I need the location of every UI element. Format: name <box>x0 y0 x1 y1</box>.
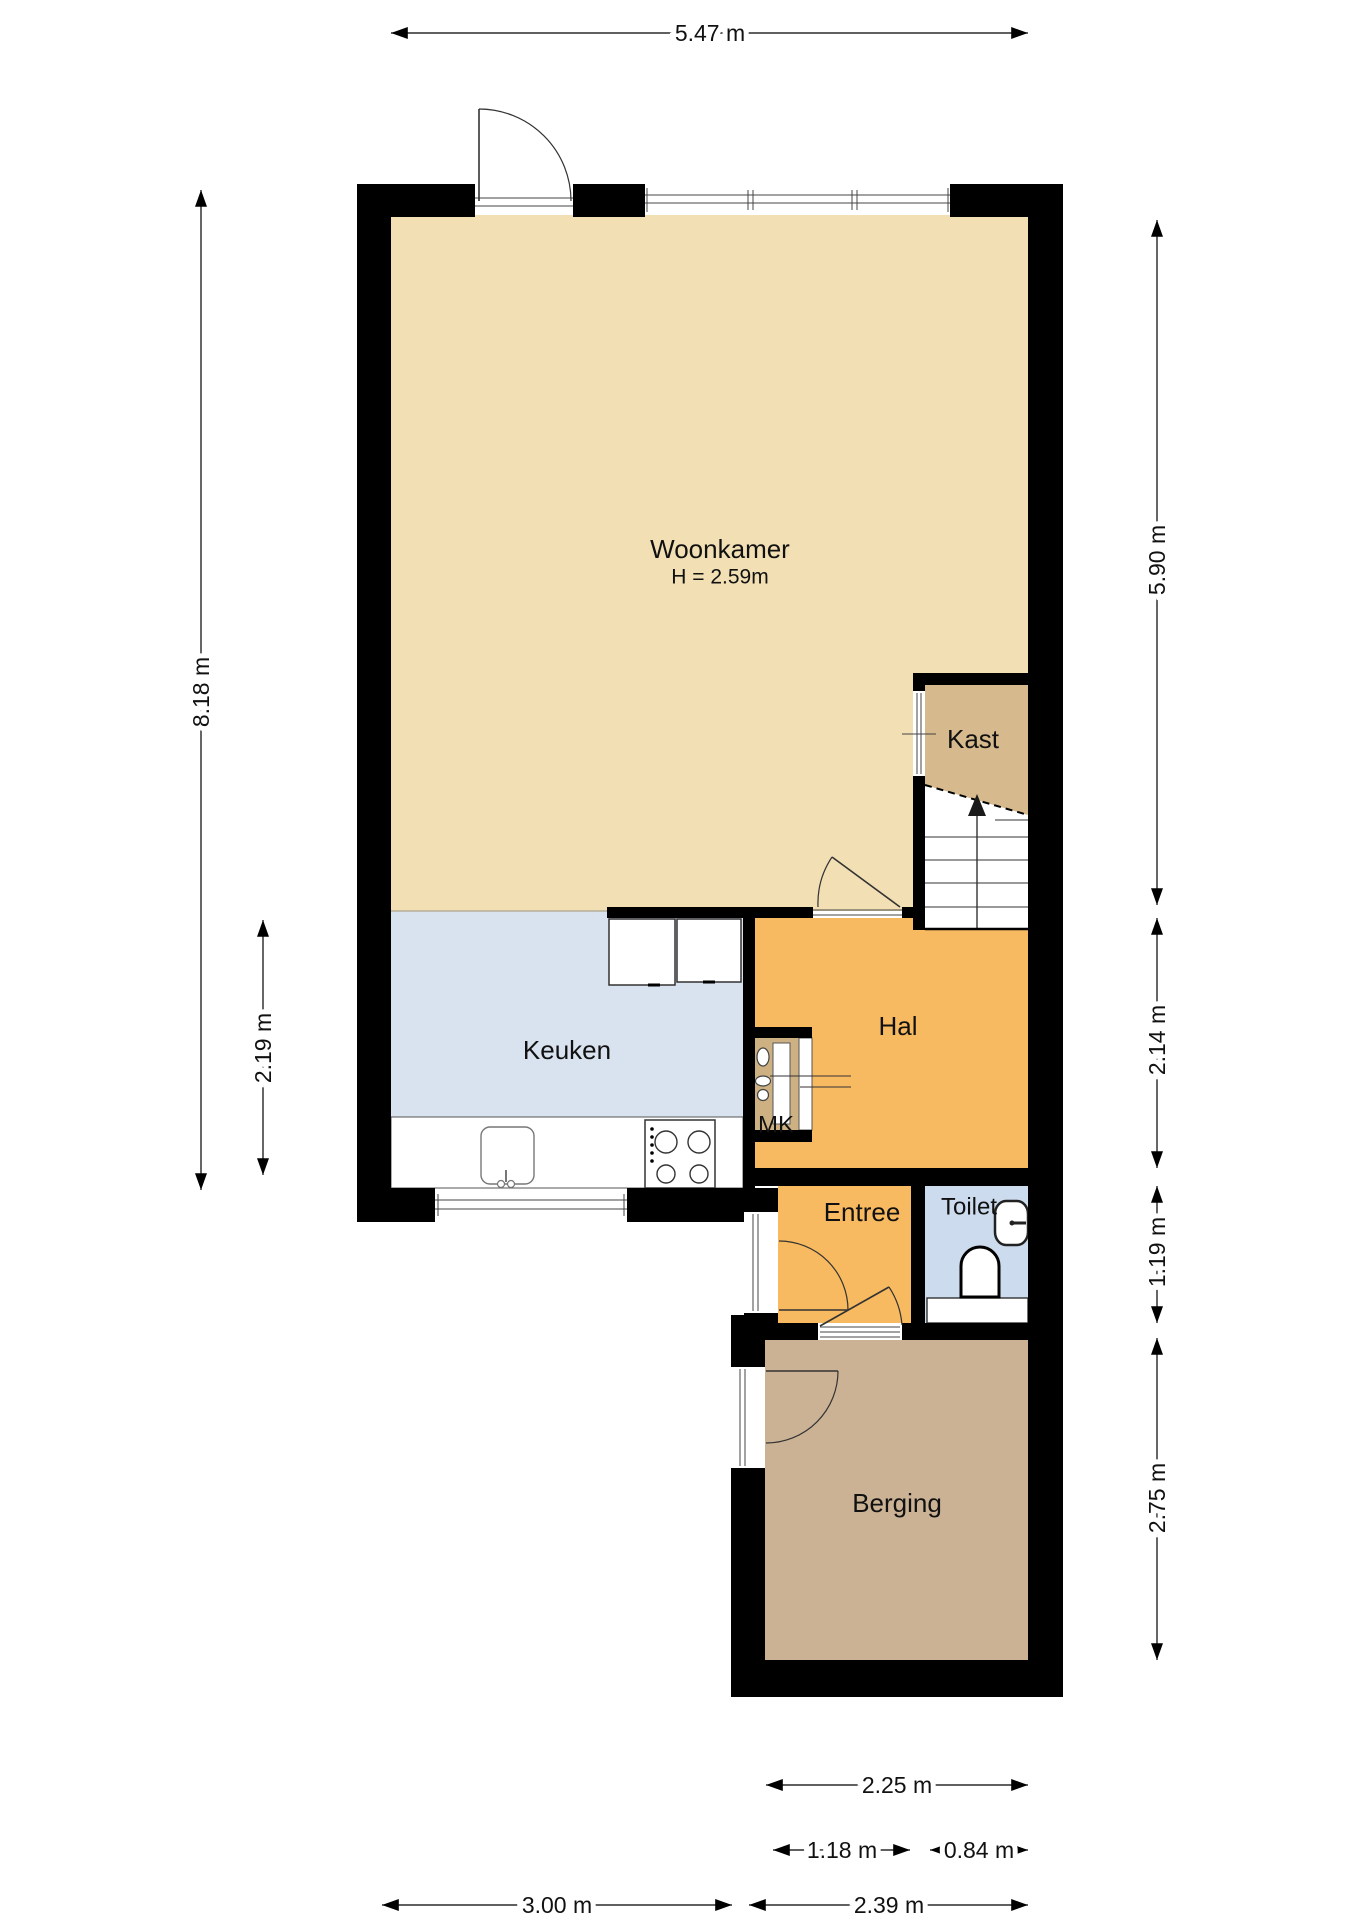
room-label-kast: Kast <box>947 724 1000 754</box>
dim-label-bottom-toilet: 0.84 m <box>944 1837 1014 1863</box>
wall-west <box>357 184 391 1222</box>
wall-mk-north <box>743 1027 812 1038</box>
dim-label-left-total: 8.18 m <box>188 657 214 727</box>
mk-door <box>799 1038 812 1130</box>
room-label-keuken: Keuken <box>523 1035 611 1065</box>
wall-hal-south <box>744 1168 1028 1186</box>
toilet-pedestal <box>927 1298 1028 1323</box>
sink-tap-knob-icon <box>498 1181 505 1188</box>
wall-segment <box>607 907 813 918</box>
sink-tap-knob-icon <box>508 1181 515 1188</box>
meter-icon <box>758 1090 769 1101</box>
ceiling-height-note: H = 2.59m <box>671 566 768 589</box>
room-label-entree: Entree <box>824 1197 901 1227</box>
dim-label-right-hal: 2.14 m <box>1144 1005 1170 1075</box>
dim-label-right-toilet: 1.19 m <box>1144 1217 1170 1287</box>
dim-label-bottom-keuken: 3.00 m <box>522 1892 592 1918</box>
dim-label-bottom-frontdoor: 1.18 m <box>807 1837 877 1863</box>
stove-icon <box>645 1120 715 1188</box>
meter-icon <box>756 1076 771 1086</box>
sink-icon <box>481 1127 534 1184</box>
wall-south-berging <box>731 1660 1063 1697</box>
wall-segment <box>744 1188 778 1212</box>
wall-entree-toilet <box>911 1186 925 1323</box>
dim-label-right-woonkamer: 5.90 m <box>1144 525 1170 595</box>
wall-segment <box>902 1323 1063 1340</box>
room-label-hal: Hal <box>878 1011 917 1041</box>
dim-label-bottom-entree: 2.39 m <box>854 1892 924 1918</box>
dim-label-top-width: 5.47 m <box>675 20 745 46</box>
room-label-berging: Berging <box>852 1488 942 1518</box>
toilet-bowl-icon <box>961 1247 999 1297</box>
dim-label-bottom-berging: 2.25 m <box>862 1772 932 1798</box>
wall-segment <box>357 1188 435 1222</box>
wall-segment <box>902 907 913 918</box>
floorplan-canvas: 5.47 m 8.18 m 2.19 m 5.90 m 2.14 m 1.19 … <box>0 0 1358 1920</box>
wall-kast-west <box>913 776 925 930</box>
floorplan-page: 5.47 m 8.18 m 2.19 m 5.90 m 2.14 m 1.19 … <box>0 0 1358 1920</box>
washbasin-drain-icon <box>1010 1221 1015 1226</box>
room-label-mk: MK <box>758 1112 794 1139</box>
wall-segment <box>913 673 925 691</box>
wall-segment <box>731 1315 765 1367</box>
wall-east <box>1028 184 1063 1697</box>
dim-label-right-berging: 2.75 m <box>1144 1463 1170 1533</box>
dim-label-left-keuken: 2.19 m <box>250 1013 276 1083</box>
meter-icon <box>757 1048 769 1066</box>
cabinet-icon <box>677 919 741 982</box>
room-label-woonkamer: Woonkamer <box>650 534 790 564</box>
wall-keuken-east <box>743 907 755 1188</box>
cabinet-icon <box>609 919 675 985</box>
room-label-toilet: Toilet <box>941 1194 997 1221</box>
window-keuken <box>435 1192 627 1218</box>
wall-segment <box>573 184 645 217</box>
wall-kast-north <box>913 673 1028 685</box>
